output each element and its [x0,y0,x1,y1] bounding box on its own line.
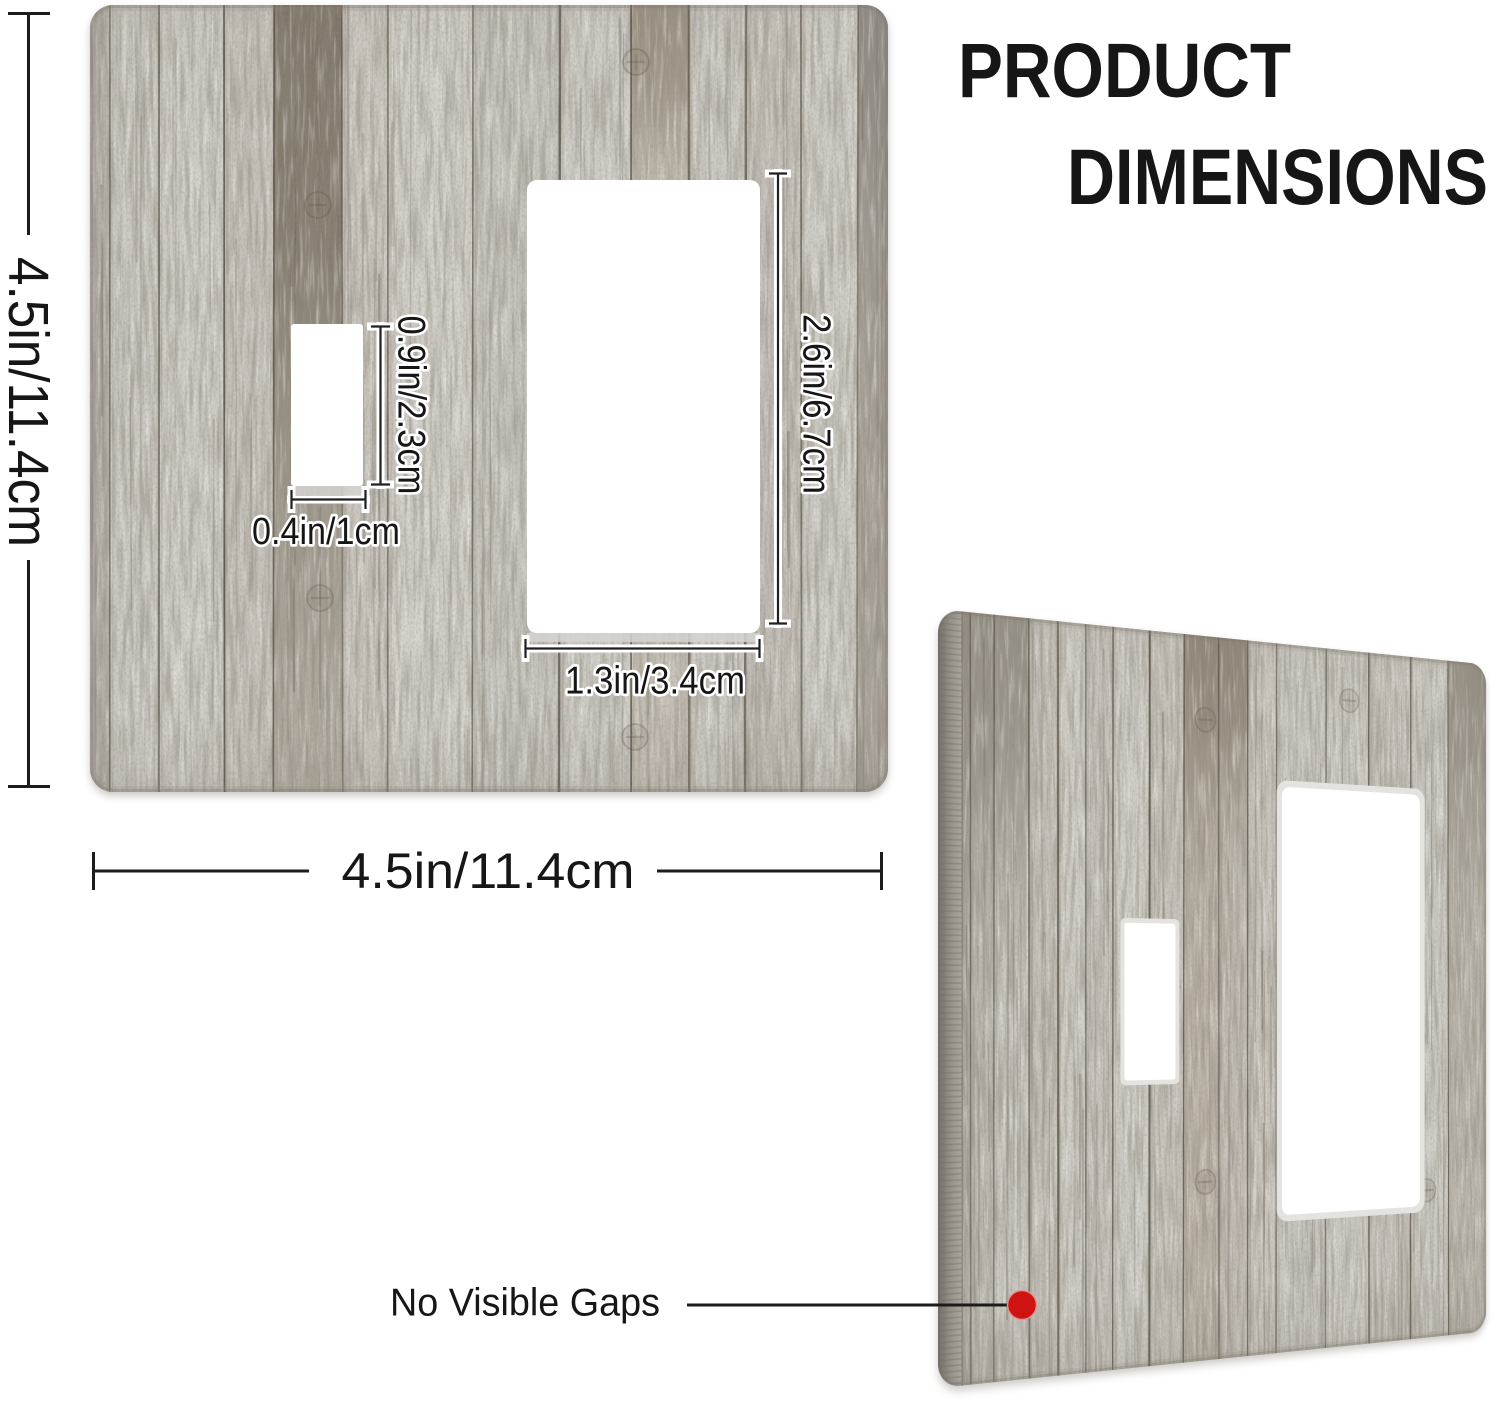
svg-text:4.5in/11.4cm: 4.5in/11.4cm [0,257,60,547]
svg-text:DIMENSIONS: DIMENSIONS [1067,132,1488,221]
svg-text:No Visible Gaps: No Visible Gaps [390,1282,660,1325]
svg-text:PRODUCT: PRODUCT [958,28,1291,114]
svg-text:4.5in/11.4cm: 4.5in/11.4cm [342,843,635,899]
